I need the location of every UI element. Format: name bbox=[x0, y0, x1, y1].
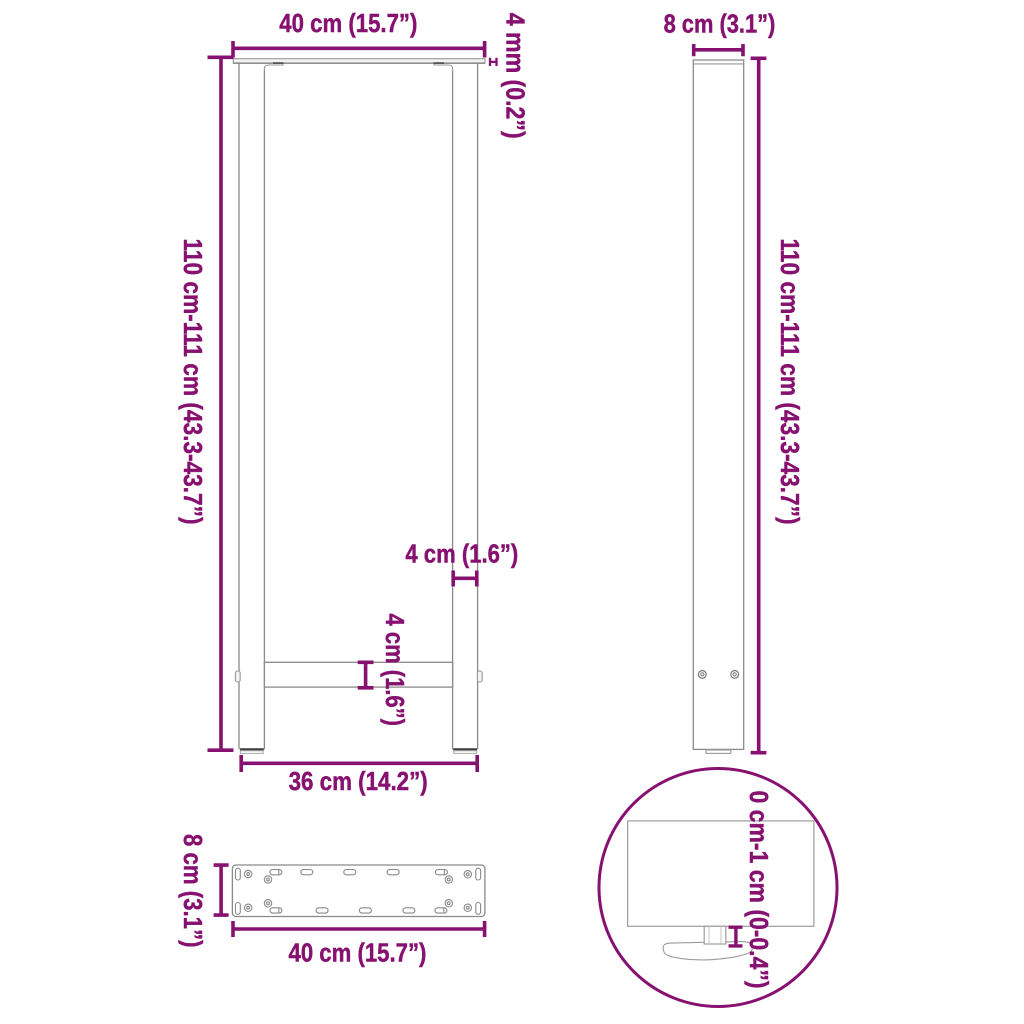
svg-text:36 cm (14.2”): 36 cm (14.2”) bbox=[289, 766, 428, 796]
svg-text:4 mm (0.2”): 4 mm (0.2”) bbox=[501, 13, 531, 139]
svg-text:4 cm (1.6”): 4 cm (1.6”) bbox=[380, 614, 410, 727]
svg-text:8 cm (3.1”): 8 cm (3.1”) bbox=[178, 834, 208, 948]
svg-text:110 cm-111 cm (43.3-43.7”): 110 cm-111 cm (43.3-43.7”) bbox=[775, 239, 805, 525]
svg-text:110 cm-111 cm (43.3-43.7”): 110 cm-111 cm (43.3-43.7”) bbox=[178, 239, 208, 525]
svg-text:40 cm (15.7”): 40 cm (15.7”) bbox=[279, 8, 417, 38]
svg-text:4 cm (1.6”): 4 cm (1.6”) bbox=[405, 539, 518, 569]
svg-text:40 cm (15.7”): 40 cm (15.7”) bbox=[289, 938, 427, 968]
svg-text:0 cm-1 cm (0-0.4”): 0 cm-1 cm (0-0.4”) bbox=[744, 791, 774, 989]
svg-text:8 cm (3.1”): 8 cm (3.1”) bbox=[664, 8, 776, 38]
